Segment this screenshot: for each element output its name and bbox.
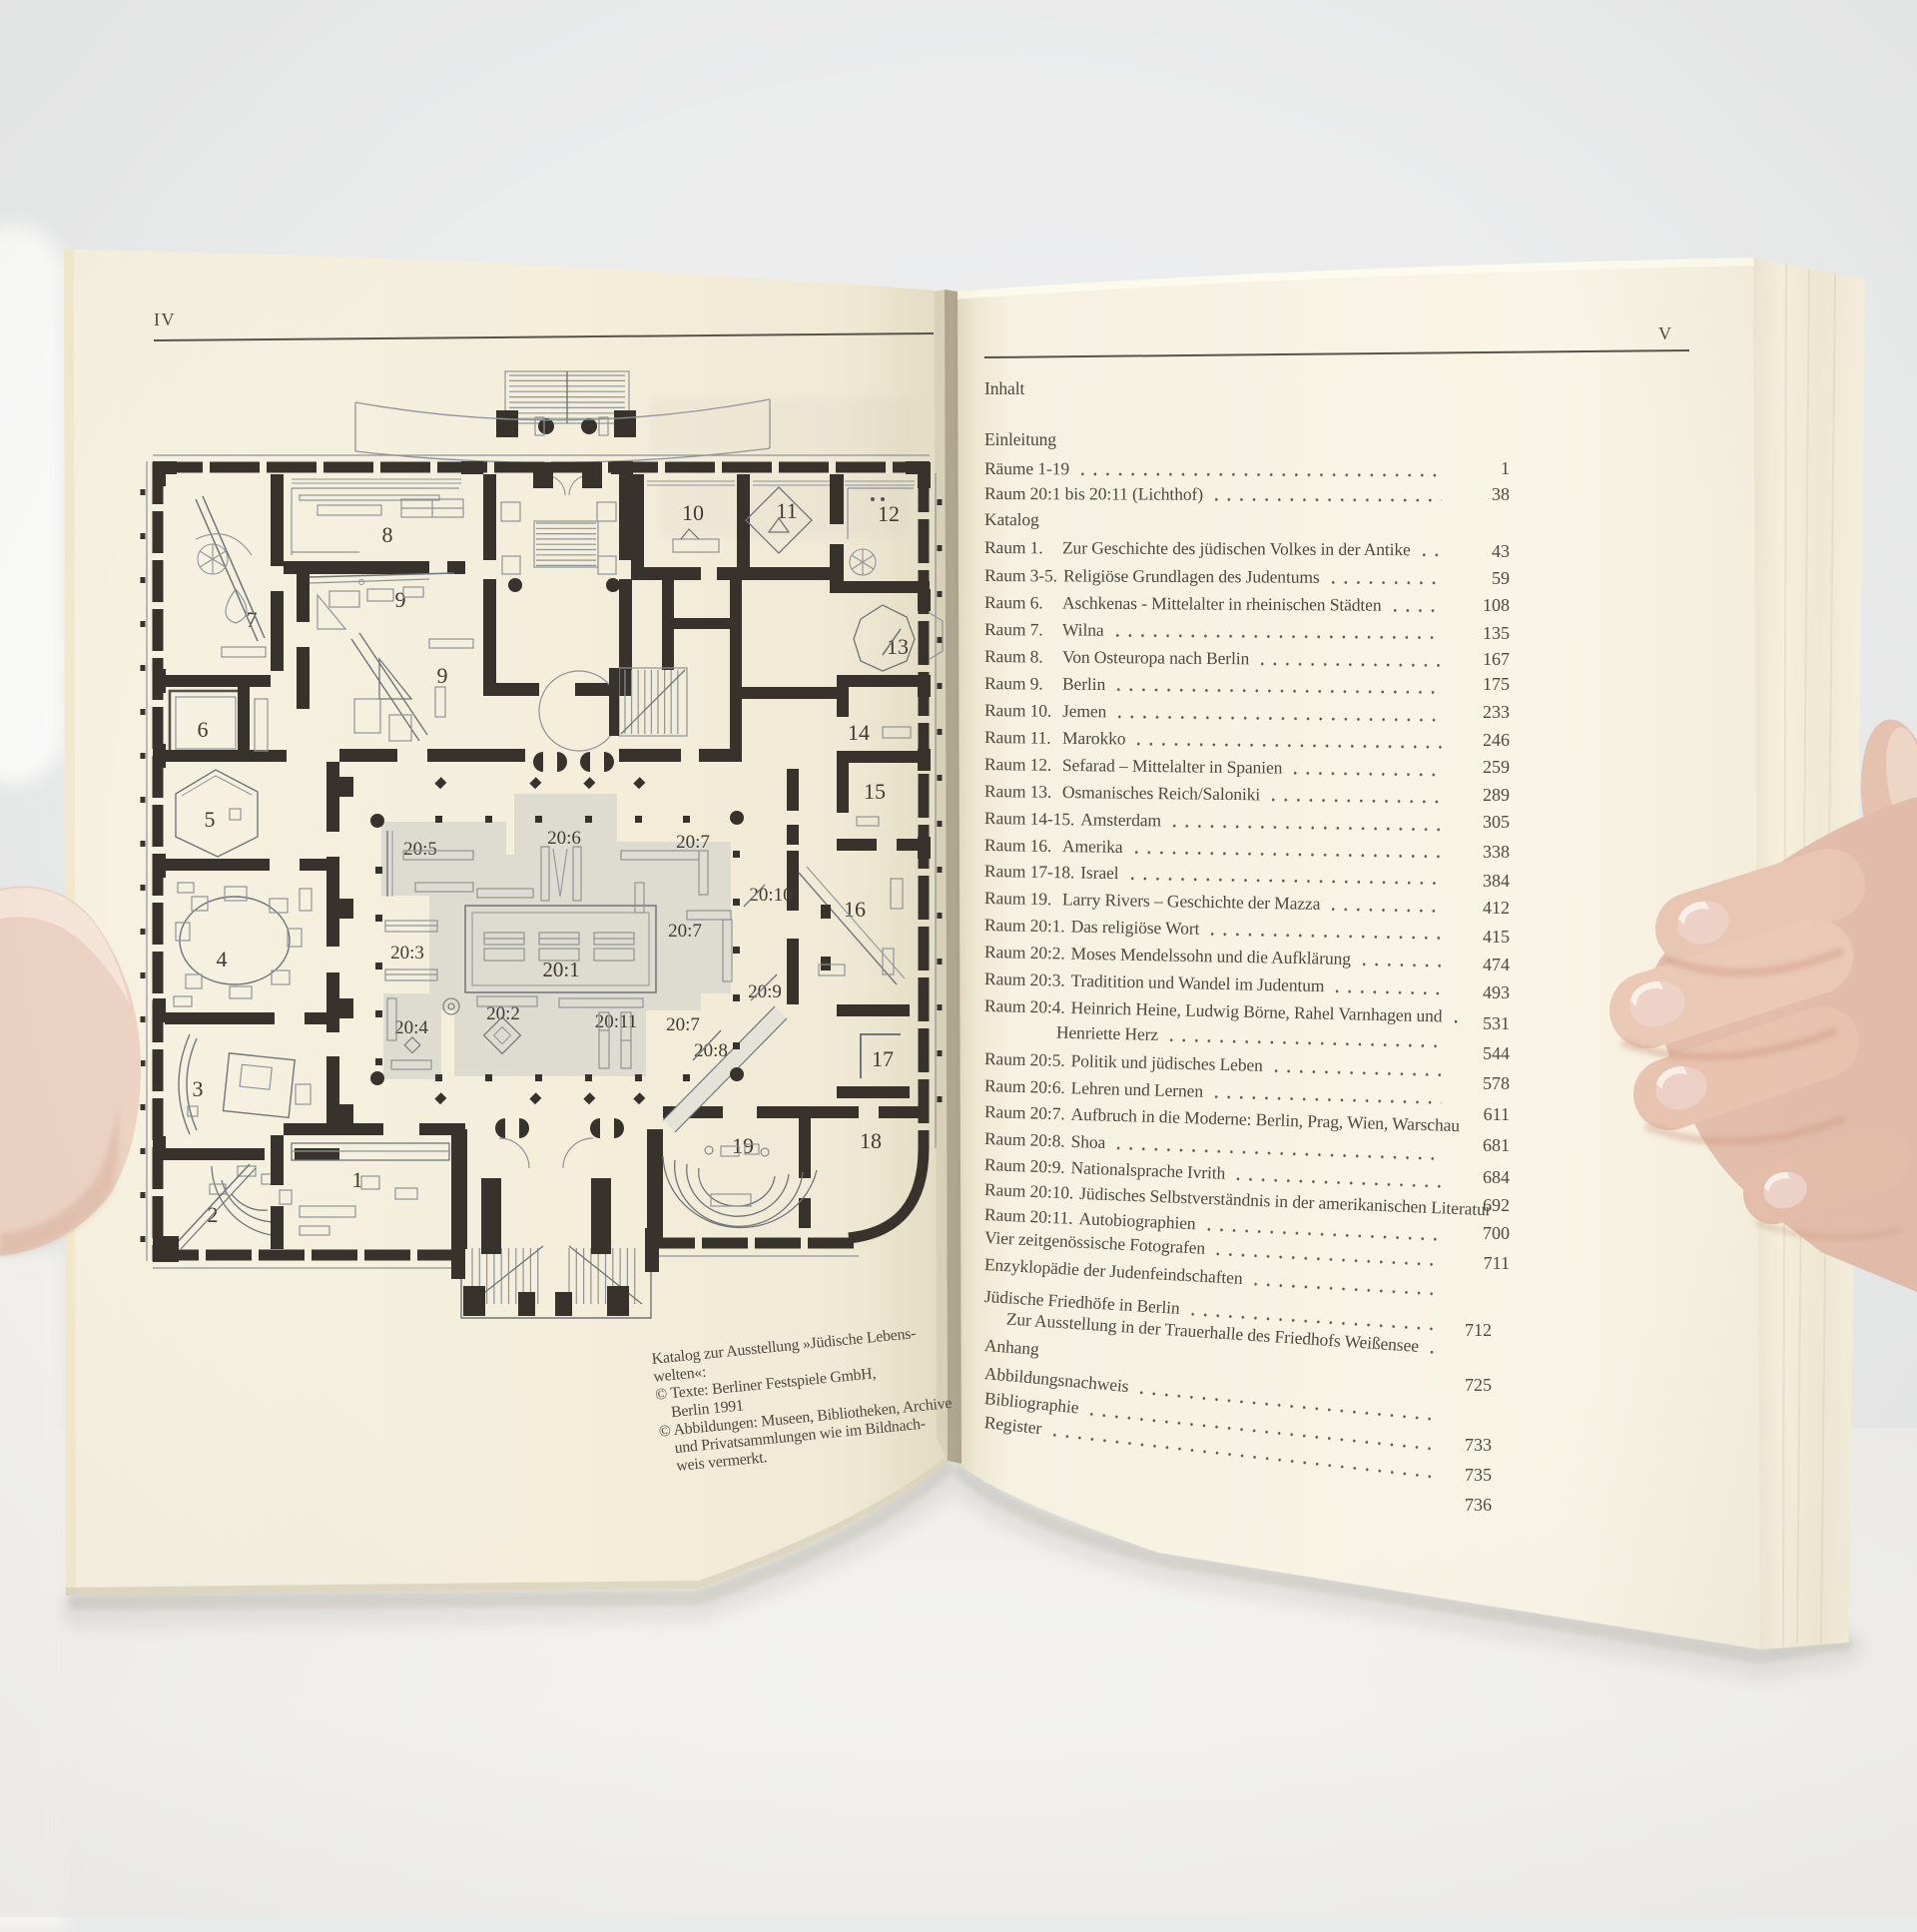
svg-text:5: 5 bbox=[205, 807, 216, 832]
svg-text:14: 14 bbox=[848, 720, 870, 745]
svg-text:20:7: 20:7 bbox=[668, 921, 702, 942]
svg-text:16: 16 bbox=[844, 897, 866, 922]
svg-text:20:7: 20:7 bbox=[666, 1014, 700, 1035]
svg-text:13: 13 bbox=[887, 634, 909, 659]
svg-text:17: 17 bbox=[872, 1046, 894, 1071]
svg-text:4: 4 bbox=[217, 947, 228, 971]
svg-text:20:7: 20:7 bbox=[676, 832, 710, 853]
svg-text:20:1: 20:1 bbox=[542, 958, 579, 981]
svg-text:20:3: 20:3 bbox=[390, 943, 424, 964]
svg-text:6: 6 bbox=[198, 717, 209, 742]
svg-text:3: 3 bbox=[193, 1076, 204, 1101]
svg-text:10: 10 bbox=[682, 500, 704, 525]
svg-text:15: 15 bbox=[864, 779, 886, 804]
svg-text:20:6: 20:6 bbox=[547, 828, 581, 849]
svg-text:12: 12 bbox=[878, 501, 900, 526]
svg-text:9: 9 bbox=[395, 587, 406, 612]
svg-text:8: 8 bbox=[382, 522, 393, 547]
svg-text:20:8: 20:8 bbox=[694, 1040, 728, 1061]
svg-text:20:4: 20:4 bbox=[394, 1017, 428, 1038]
svg-text:9: 9 bbox=[437, 663, 448, 688]
svg-text:20:5: 20:5 bbox=[403, 839, 437, 860]
svg-text:20:9: 20:9 bbox=[748, 981, 782, 1002]
svg-text:18: 18 bbox=[860, 1128, 882, 1153]
